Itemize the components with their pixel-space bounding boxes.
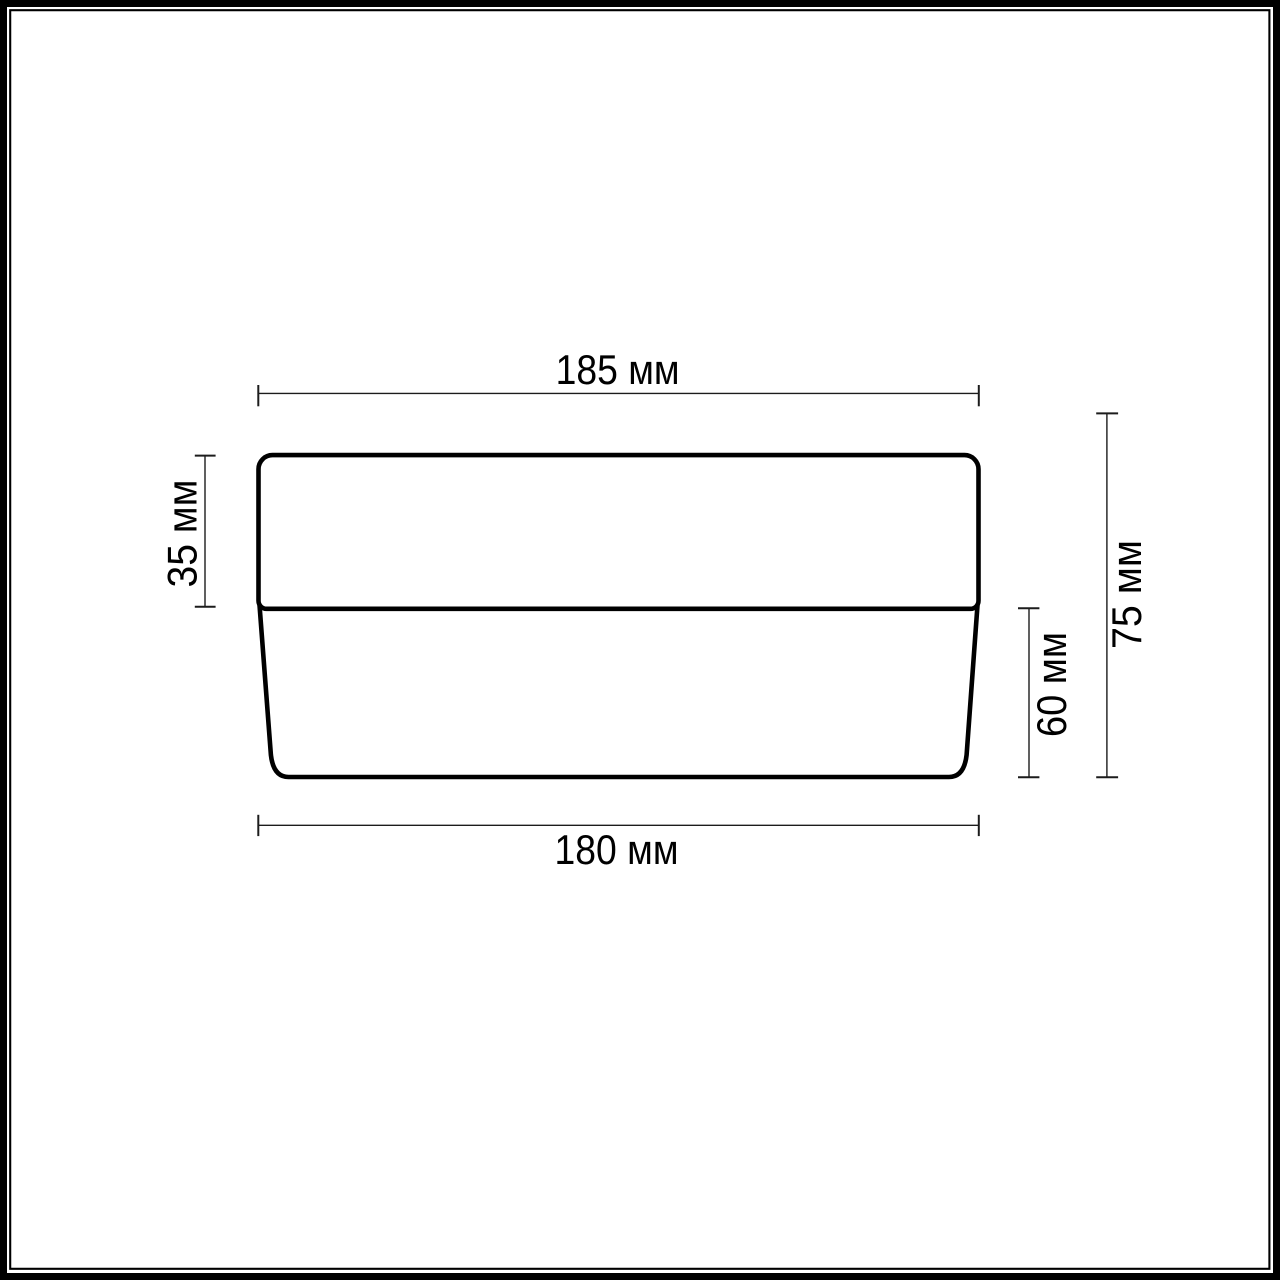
svg-text:60 мм: 60 мм (1028, 632, 1075, 737)
svg-text:75 мм: 75 мм (1103, 540, 1150, 649)
svg-text:35 мм: 35 мм (159, 480, 206, 588)
svg-text:185 мм: 185 мм (556, 346, 680, 393)
svg-text:180 мм: 180 мм (555, 826, 679, 873)
